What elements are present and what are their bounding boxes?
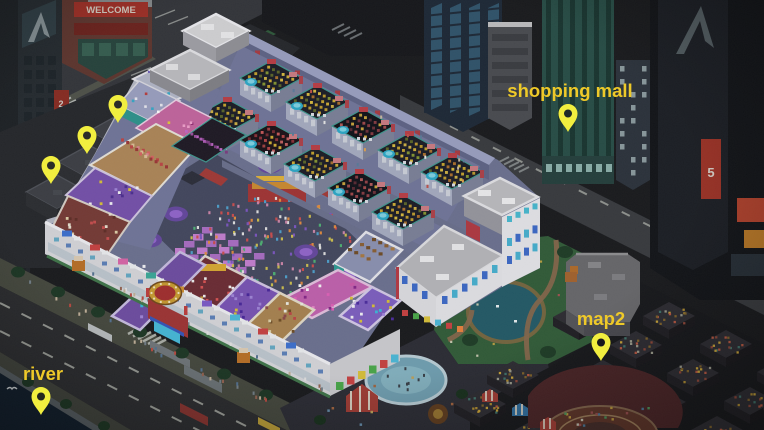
svg-text:river: river [23, 363, 63, 384]
svg-text:shopping mall: shopping mall [507, 80, 632, 101]
svg-text:map2: map2 [577, 308, 625, 329]
